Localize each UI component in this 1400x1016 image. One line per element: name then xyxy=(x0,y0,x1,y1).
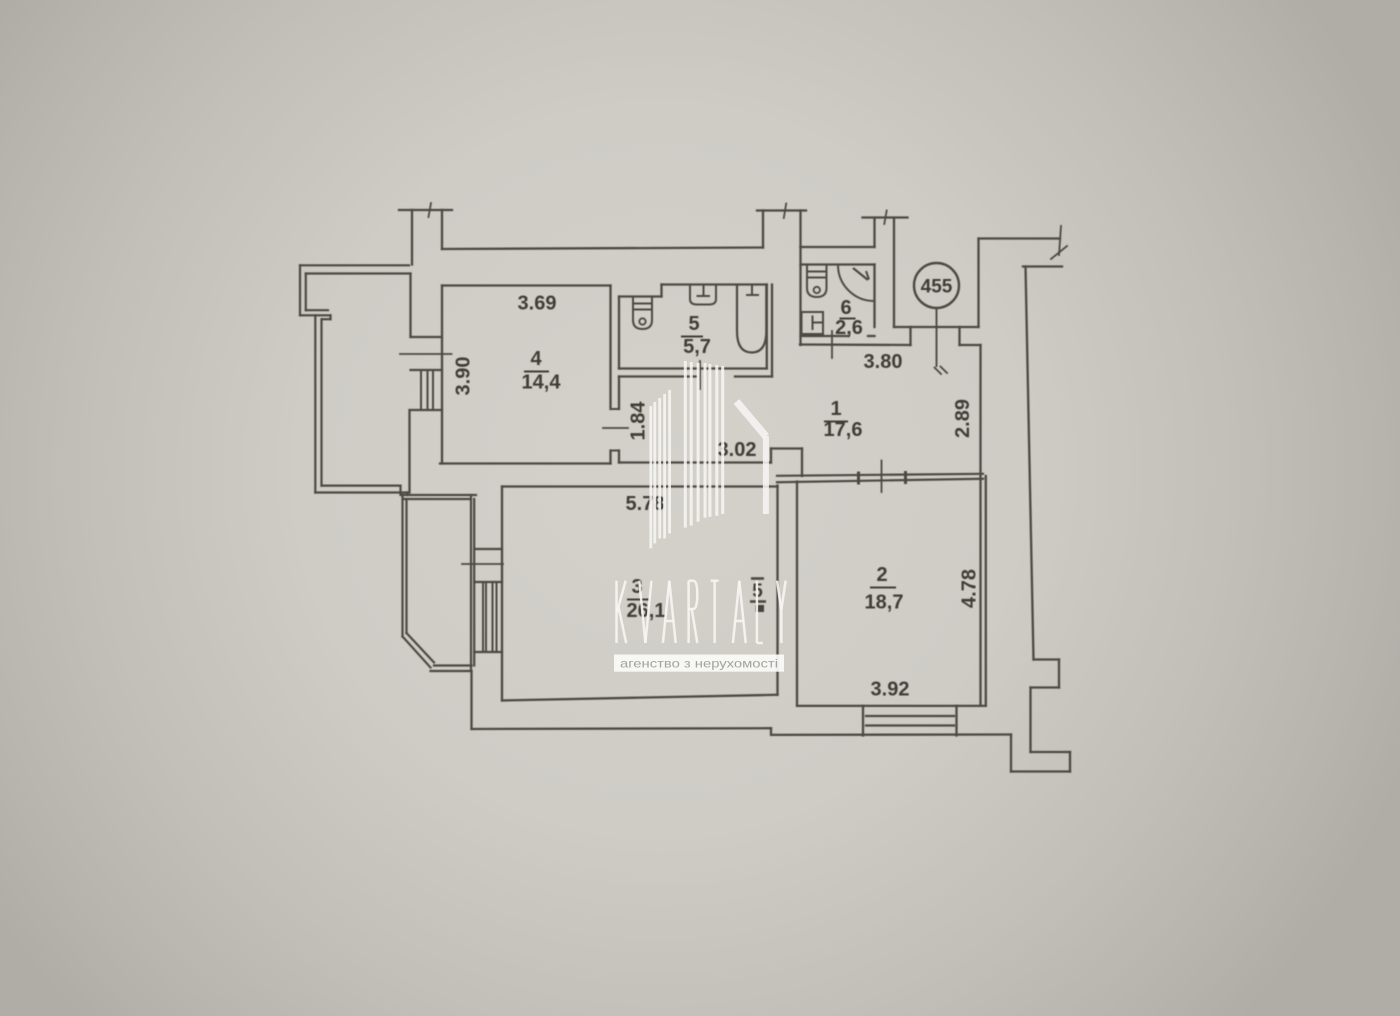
svg-text:5,7: 5,7 xyxy=(683,336,711,358)
svg-text:14,4: 14,4 xyxy=(522,372,562,394)
svg-text:1.84: 1.84 xyxy=(628,401,650,441)
svg-text:4: 4 xyxy=(530,348,542,370)
svg-text:2.89: 2.89 xyxy=(952,399,974,438)
svg-text:3.92: 3.92 xyxy=(871,679,910,701)
svg-text:3.90: 3.90 xyxy=(453,357,475,396)
svg-text:4.78: 4.78 xyxy=(959,569,981,608)
svg-text:3.69: 3.69 xyxy=(518,293,557,315)
svg-text:17,6: 17,6 xyxy=(824,419,863,441)
svg-text:3.80: 3.80 xyxy=(864,351,903,373)
svg-text:1: 1 xyxy=(830,398,841,420)
svg-text:2,6: 2,6 xyxy=(835,317,863,339)
svg-text:2: 2 xyxy=(876,564,887,586)
svg-text:455: 455 xyxy=(921,277,953,298)
svg-text:18,7: 18,7 xyxy=(865,592,904,614)
svg-text:26,1: 26,1 xyxy=(627,600,666,622)
svg-text:6: 6 xyxy=(840,297,851,319)
svg-text:агенство з нерухомості: агенство з нерухомості xyxy=(620,657,778,671)
svg-text:5: 5 xyxy=(688,313,699,335)
